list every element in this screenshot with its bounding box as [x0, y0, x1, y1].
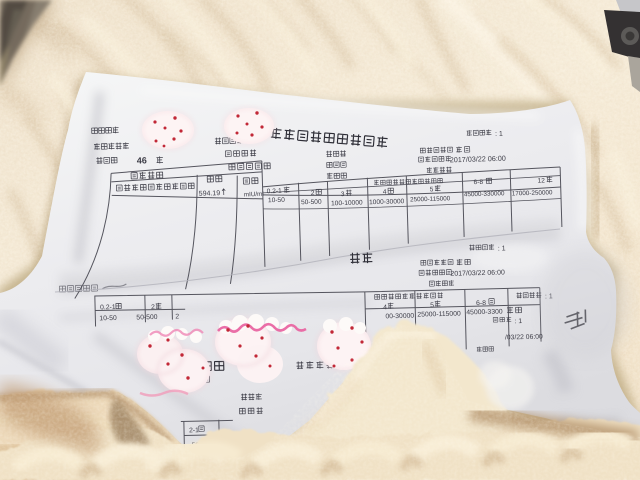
svg-text:6-8: 6-8 [473, 179, 483, 186]
svg-text:0.2-1: 0.2-1 [100, 304, 116, 311]
svg-text:6-8: 6-8 [476, 300, 486, 307]
svg-text:: 1: : 1 [514, 318, 522, 325]
svg-text:4: 4 [383, 304, 387, 311]
svg-text:/03/22 06:00: /03/22 06:00 [505, 334, 543, 342]
svg-text:100-10000: 100-10000 [331, 199, 363, 207]
svg-text:25000-115000: 25000-115000 [410, 195, 451, 203]
svg-text:5: 5 [430, 186, 434, 193]
svg-text:: 1: : 1 [495, 131, 503, 138]
svg-text:2-1: 2-1 [189, 427, 199, 434]
svg-text:2: 2 [311, 190, 315, 197]
svg-text:17000-250000: 17000-250000 [512, 189, 553, 197]
svg-text:10-50: 10-50 [99, 315, 117, 322]
svg-text:45000-330000: 45000-330000 [464, 190, 505, 198]
svg-text:3: 3 [341, 191, 345, 198]
svg-text:00-30000: 00-30000 [385, 313, 414, 321]
svg-text:2: 2 [175, 313, 179, 320]
svg-text:1000-30000: 1000-30000 [369, 198, 405, 206]
svg-text:: 1: : 1 [498, 245, 506, 252]
svg-text:5: 5 [430, 302, 434, 309]
svg-text:mIU/ml: mIU/ml [244, 191, 264, 199]
svg-text:4: 4 [383, 189, 387, 196]
svg-text:12: 12 [537, 177, 545, 184]
svg-text:2017/03/22 06:00: 2017/03/22 06:00 [450, 154, 506, 165]
svg-text:50-500: 50-500 [136, 314, 158, 322]
svg-text:25000-115000: 25000-115000 [417, 311, 461, 319]
svg-text:45000-3300: 45000-3300 [466, 309, 503, 317]
svg-text:46: 46 [137, 155, 147, 165]
svg-text:2: 2 [151, 304, 155, 311]
svg-text:50-500: 50-500 [301, 199, 322, 207]
svg-text:2017/03/22 06:00: 2017/03/22 06:00 [450, 269, 505, 277]
svg-text:10-50: 10-50 [268, 197, 285, 205]
svg-text:0.2-1: 0.2-1 [267, 188, 283, 195]
svg-text:594.19: 594.19 [199, 190, 221, 198]
